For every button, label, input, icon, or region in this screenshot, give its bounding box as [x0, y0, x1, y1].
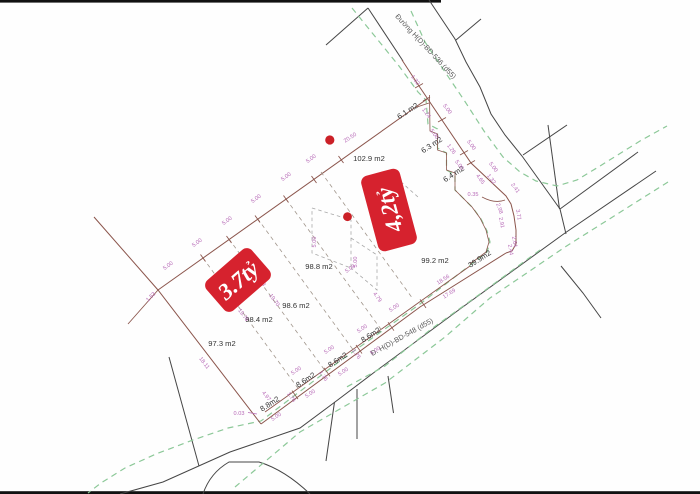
- svg-text:5.00: 5.00: [312, 237, 318, 248]
- svg-text:102.9 m2: 102.9 m2: [353, 154, 385, 163]
- svg-text:97.3 m2: 97.3 m2: [208, 339, 235, 348]
- svg-text:0.03: 0.03: [234, 411, 245, 417]
- svg-text:0.35: 0.35: [468, 192, 479, 198]
- svg-text:99.2 m2: 99.2 m2: [421, 256, 448, 265]
- svg-text:98.4 m2: 98.4 m2: [245, 315, 272, 324]
- svg-text:98.6 m2: 98.6 m2: [282, 301, 309, 310]
- svg-text:5.00: 5.00: [353, 257, 359, 268]
- svg-text:98.8 m2: 98.8 m2: [305, 262, 332, 271]
